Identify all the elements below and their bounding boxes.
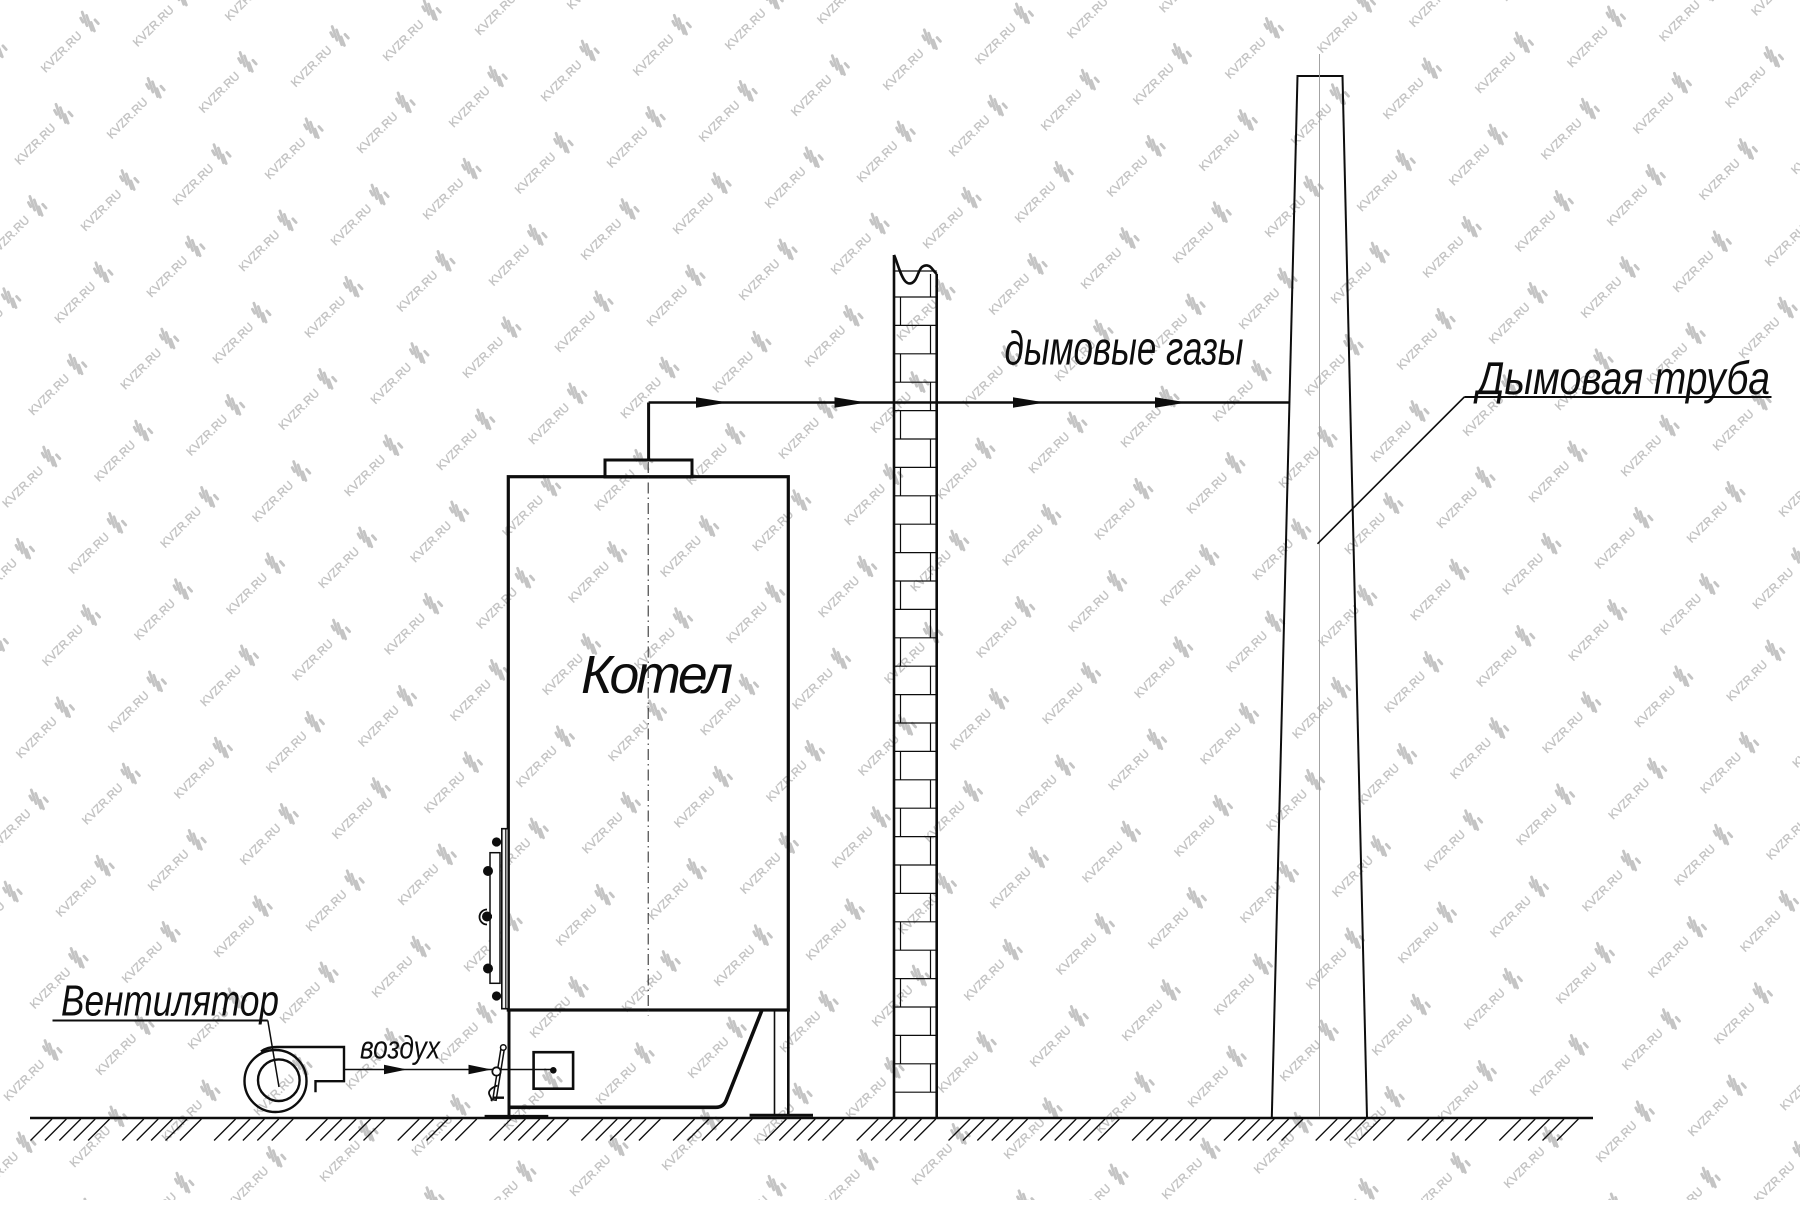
svg-text:воздух: воздух: [360, 1029, 441, 1065]
svg-text:дымовые газы: дымовые газы: [1005, 322, 1244, 375]
svg-text:Вентилятор: Вентилятор: [61, 977, 279, 1026]
svg-text:Котел: Котел: [581, 646, 733, 705]
